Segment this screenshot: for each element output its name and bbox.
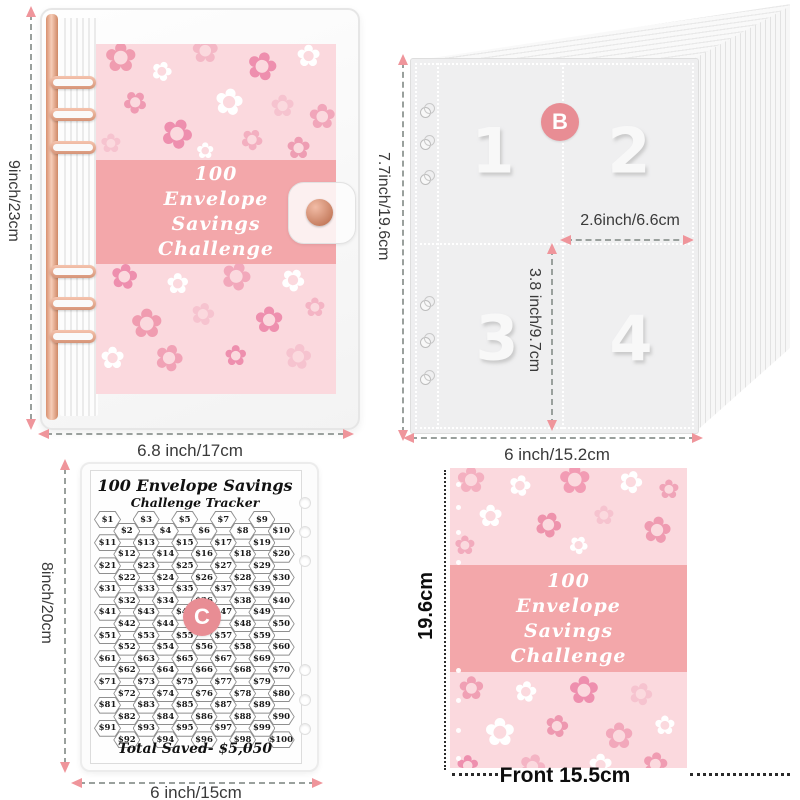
punch-hole-icon [420, 300, 431, 311]
tracker-width-label: 6 inch/15cm [96, 783, 296, 800]
sakura-flower-icon: ✿ [242, 45, 283, 90]
sakura-flower-icon: ✿ [191, 44, 220, 68]
arrowhead-icon [398, 54, 408, 65]
arrowhead-icon [547, 420, 557, 431]
arrowhead-icon [692, 433, 703, 443]
cover-title-line: Savings [524, 619, 613, 644]
pocket-width-label: 2.6inch/6.6cm [570, 212, 690, 230]
dim-line-binder-height [30, 14, 32, 420]
punch-hole-icon [456, 668, 461, 673]
sakura-flower-icon: ✿ [100, 130, 122, 156]
sakura-flower-icon: ✿ [568, 672, 600, 710]
sakura-flower-icon: ✿ [454, 532, 476, 558]
binder-height-label: 9inch/23cm [4, 160, 22, 242]
front-cover-sheet: ✿✿✿✿✿✿✿✿✿✿✿✿✿✿✿✿✿✿✿✿✿✿✿ 100 Envelope Sav… [450, 468, 687, 768]
cover-title-band: 100 Envelope Savings Challenge [450, 565, 687, 672]
dim-line-sleeve-height [402, 62, 404, 433]
sakura-flower-icon: ✿ [211, 82, 247, 123]
punch-hole-icon [420, 374, 431, 385]
sakura-flower-icon: ✿ [153, 109, 200, 159]
pocket-number: 4 [609, 303, 652, 376]
arrowhead-icon [71, 778, 82, 788]
sakura-flower-icon: ✿ [147, 55, 176, 87]
sakura-flower-icon: ✿ [614, 468, 648, 501]
sakura-flower-icon: ✿ [558, 468, 592, 500]
sakura-flower-icon: ✿ [166, 270, 189, 298]
tracker-total: Total Saved- $5,050 [90, 741, 300, 757]
sakura-flower-icon: ✿ [224, 342, 247, 370]
sakura-flower-icon: ✿ [528, 504, 568, 547]
punch-hole-icon [456, 505, 461, 510]
sakura-flower-icon: ✿ [512, 676, 540, 708]
punch-hole-icon [420, 139, 431, 150]
sakura-flower-icon: ✿ [658, 476, 680, 502]
binder-title-line: 100 [195, 162, 238, 187]
dim-line-binder-width [46, 433, 344, 435]
arrowhead-icon [60, 459, 70, 470]
sakura-flower-icon: ✿ [100, 344, 125, 374]
sakura-flower-icon: ✿ [130, 304, 164, 344]
sakura-flower-icon: ✿ [187, 297, 219, 332]
sakura-flower-icon: ✿ [484, 714, 516, 752]
binder-title-line: Envelope [164, 187, 269, 212]
badge-b: B [541, 103, 579, 141]
tracker-sheet: 100 Envelope Savings Challenge Tracker $… [80, 462, 319, 772]
sakura-flower-icon: ✿ [254, 302, 284, 338]
sakura-flower-icon: ✿ [593, 502, 615, 528]
arrowhead-icon [560, 235, 571, 245]
punch-hole-icon [299, 723, 311, 735]
punch-hole-icon [299, 555, 311, 567]
pocket-number: 2 [607, 115, 650, 188]
dim-line-tracker-height [64, 468, 66, 764]
sakura-flower-icon: ✿ [505, 469, 535, 502]
cover-title-line: Envelope [516, 594, 621, 619]
cover-title-line: Challenge [511, 644, 627, 669]
punch-hole-icon [299, 664, 311, 676]
sakura-flower-icon: ✿ [654, 712, 676, 738]
arrowhead-icon [312, 778, 323, 788]
arrowhead-icon [38, 429, 49, 439]
sakura-flower-icon: ✿ [196, 140, 214, 162]
product-collage: ✿✿✿✿✿✿✿✿✿✿✿✿✿✿✿✿✿✿✿✿✿✿✿✿✿✿ 100 Envelope … [0, 0, 800, 800]
cover-width-label: Front 15.5cm [470, 764, 660, 788]
arrowhead-icon [683, 235, 694, 245]
pocket-height-label: 3.8 inch/9.7cm [525, 268, 543, 372]
binder-ring-icon [50, 141, 96, 154]
binder-ring-icon [50, 108, 96, 121]
pocket-number: 1 [471, 115, 514, 188]
dim-line-pocket-height [551, 249, 553, 425]
sakura-flower-icon: ✿ [296, 44, 321, 72]
binder-ring-icon [50, 297, 96, 310]
sleeve-stack-right-edges [695, 4, 790, 434]
dim-line-cover-height [444, 470, 446, 770]
sakura-flower-icon: ✿ [541, 709, 573, 744]
arrowhead-icon [403, 433, 414, 443]
punch-hole-icon [456, 756, 461, 761]
dim-line-pocket-width [566, 239, 689, 241]
cover-title-line: 100 [547, 569, 590, 594]
binder-spine-bar [46, 14, 58, 420]
sakura-flower-icon: ✿ [308, 100, 336, 134]
sakura-flower-icon: ✿ [563, 531, 592, 562]
punch-hole-icon [456, 530, 461, 535]
sakura-flower-icon: ✿ [458, 672, 485, 704]
sakura-flower-icon: ✿ [235, 122, 269, 158]
sakura-flower-icon: ✿ [115, 83, 154, 122]
sakura-flower-icon: ✿ [624, 677, 658, 714]
sakura-flower-icon: ✿ [104, 44, 138, 78]
sleeve-height-label: 7.7inch/19.6cm [374, 152, 392, 261]
punch-hole-icon [456, 560, 461, 565]
dim-line-sleeve-width [411, 437, 695, 439]
binder-title-line: Challenge [158, 237, 274, 262]
dim-line-cover-width [690, 773, 790, 776]
binder-ring-icon [50, 330, 96, 343]
sakura-flower-icon: ✿ [639, 510, 675, 551]
arrowhead-icon [343, 429, 354, 439]
punch-hole-icon [299, 694, 311, 706]
arrowhead-icon [60, 762, 70, 773]
binder-ring-icon [50, 76, 96, 89]
tracker-height-label: 8inch/20cm [37, 562, 55, 644]
arrowhead-icon [26, 6, 36, 17]
sakura-flower-icon: ✿ [478, 502, 503, 532]
sakura-flower-icon: ✿ [304, 294, 326, 320]
binder-snap-strap [288, 182, 356, 244]
punch-hole-icon [299, 526, 311, 538]
cover-height-label: 19.6cm [415, 572, 438, 640]
punch-hole-icon [420, 337, 431, 348]
punch-hole-icon [456, 728, 461, 733]
pocket-number: 3 [475, 302, 518, 375]
sakura-flower-icon: ✿ [270, 92, 295, 122]
punch-hole-icon [420, 107, 431, 118]
binder-title-line: Savings [171, 212, 260, 237]
snap-button-icon [306, 199, 333, 226]
binder-width-label: 6.8 inch/17cm [90, 441, 290, 461]
punch-hole-icon [456, 482, 461, 487]
pocket-seam [437, 63, 439, 429]
arrowhead-icon [547, 243, 557, 254]
binder-ring-icon [50, 265, 96, 278]
punch-hole-icon [456, 698, 461, 703]
arrowhead-icon [26, 419, 36, 430]
punch-hole-icon [420, 174, 431, 185]
punch-hole-icon [299, 497, 311, 509]
badge-c: C [183, 598, 221, 636]
sleeve-width-label: 6 inch/15.2cm [457, 445, 657, 465]
sakura-flower-icon: ✿ [281, 338, 315, 376]
